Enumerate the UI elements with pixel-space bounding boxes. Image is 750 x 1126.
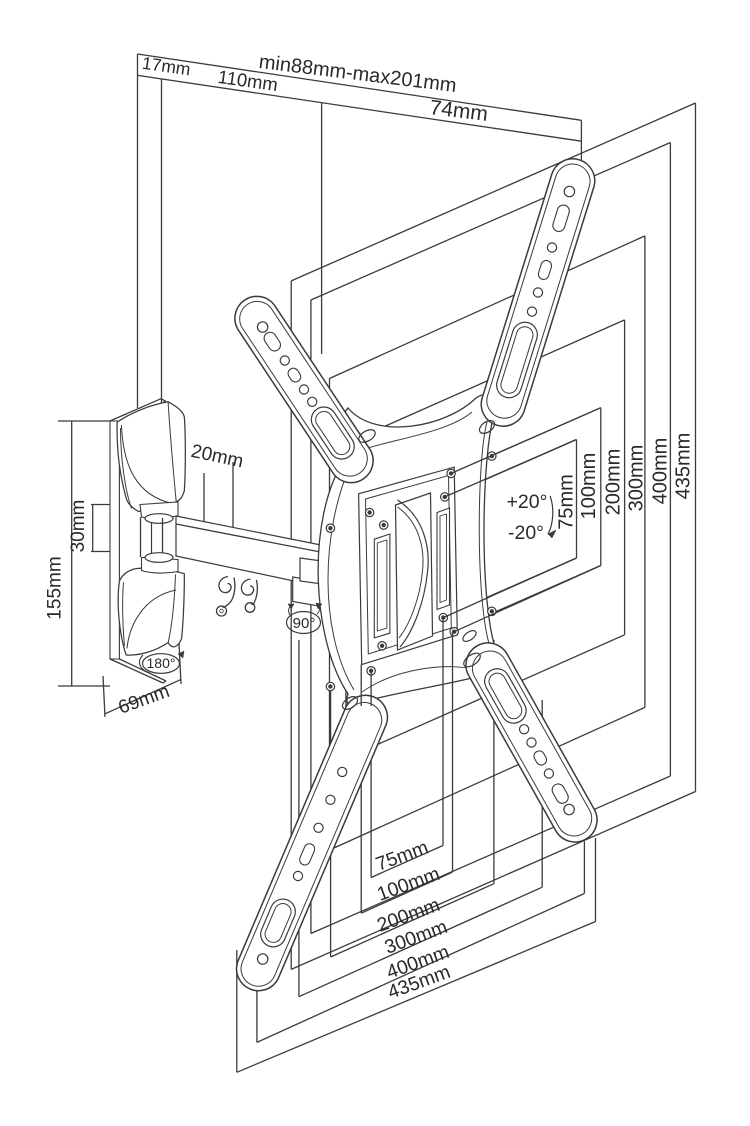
svg-text:435mm: 435mm (673, 433, 695, 500)
svg-text:90°: 90° (293, 615, 316, 632)
svg-text:100mm: 100mm (578, 453, 600, 520)
svg-text:75mm: 75mm (556, 474, 578, 530)
svg-text:180°: 180° (147, 655, 176, 671)
svg-text:155mm: 155mm (45, 556, 66, 619)
svg-text:200mm: 200mm (603, 449, 625, 516)
svg-text:400mm: 400mm (650, 438, 672, 505)
svg-text:300mm: 300mm (626, 445, 648, 512)
svg-text:30mm: 30mm (68, 500, 89, 553)
svg-text:+20°: +20° (507, 491, 548, 513)
svg-text:-20°: -20° (508, 522, 544, 544)
